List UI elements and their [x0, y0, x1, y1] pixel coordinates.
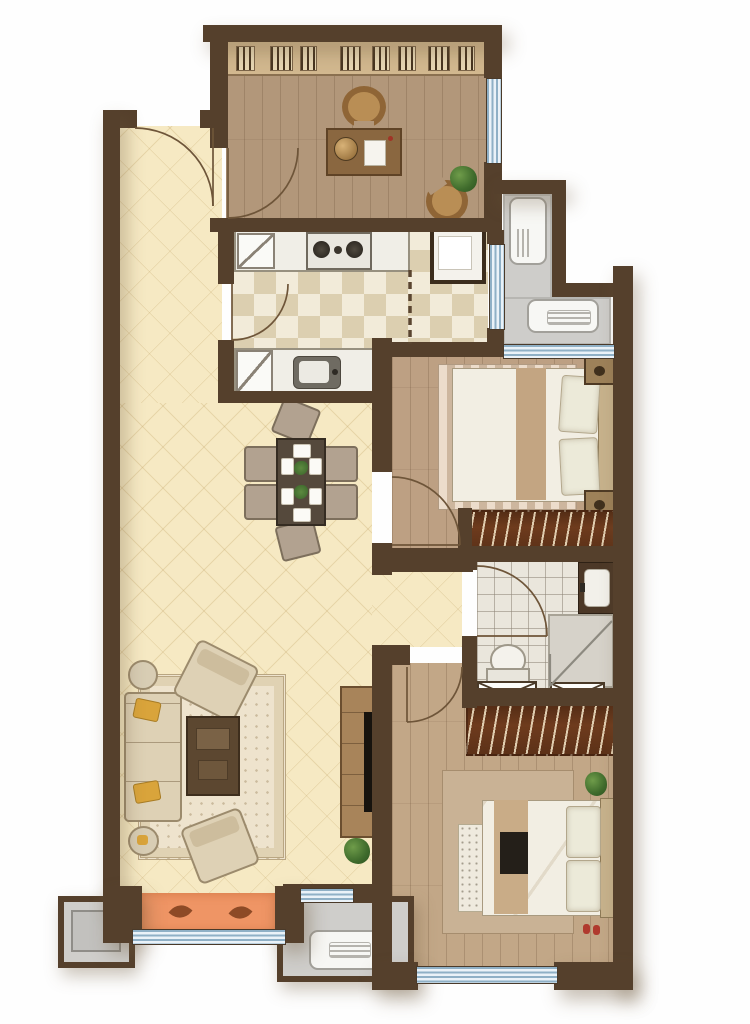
- table-item: [137, 835, 148, 845]
- side-table: [128, 826, 159, 856]
- wall-study-right-lower: [484, 162, 502, 230]
- books: [236, 46, 255, 71]
- wall-kitchen-left-lower: [218, 340, 234, 395]
- wall-study-kitchen: [210, 218, 502, 232]
- bedroom1-headboard: [598, 366, 614, 504]
- wall-balcony-right: [552, 180, 566, 297]
- books: [428, 46, 450, 71]
- nightstand: [584, 356, 615, 385]
- books: [340, 46, 361, 71]
- tray: [196, 728, 230, 750]
- wall-kitchen-right-upper: [487, 230, 504, 244]
- corridor-floor: [372, 571, 462, 647]
- study-plant: [450, 166, 477, 192]
- cooktop: [306, 232, 372, 270]
- bed-tray-dark: [500, 832, 528, 874]
- wall-bedroom1-top: [386, 342, 503, 357]
- placemat: [281, 488, 294, 505]
- wall-kitchen-bottom: [218, 391, 386, 403]
- fridge-inner: [438, 236, 472, 270]
- shower-area: [548, 614, 614, 688]
- sink-faucet: [332, 369, 338, 375]
- window-living-small: [300, 888, 354, 903]
- slipper: [593, 925, 600, 935]
- sofa: [124, 692, 182, 822]
- desk-chair: [342, 86, 386, 128]
- vanity-faucet: [580, 583, 585, 592]
- study-desk: [326, 128, 402, 176]
- wall-bathroom-left-stub: [462, 560, 477, 570]
- wall-bedroom1-bottom: [372, 548, 473, 572]
- burner-knob: [334, 246, 342, 254]
- dining-chair: [322, 484, 358, 520]
- burner: [346, 241, 363, 258]
- foot-bench: [458, 824, 485, 912]
- wall-kitchen-left-upper: [218, 232, 234, 284]
- window-living-bay: [132, 929, 286, 945]
- sofa-pillow: [132, 780, 161, 804]
- coffee-table: [186, 716, 240, 796]
- wall-entry-corner: [200, 110, 217, 128]
- unit-lines: [547, 310, 591, 325]
- wall-bathroom-top: [462, 546, 615, 562]
- kitchen-sink: [293, 356, 341, 389]
- floor-plan-canvas: [0, 0, 750, 1024]
- window-master-bottom: [416, 966, 558, 984]
- balcony-storage-unit: [527, 299, 599, 333]
- kitchen-lower-box: [236, 350, 273, 393]
- dining-chair: [244, 484, 280, 520]
- placemat: [281, 458, 294, 475]
- pillow: [566, 860, 601, 912]
- bay-window-mat: [140, 893, 277, 932]
- wall-master-bottom-right: [554, 962, 633, 990]
- books: [398, 46, 416, 71]
- table-centerpiece: [294, 485, 308, 499]
- washer-lines: [517, 229, 530, 257]
- window-bedroom1-balcony: [503, 344, 615, 359]
- wall-study-right-upper: [484, 40, 502, 78]
- books: [300, 46, 317, 71]
- kitchen-prep-box: [237, 233, 275, 269]
- books: [372, 46, 390, 71]
- books: [458, 46, 475, 71]
- wall-bedroom1-left-upper: [372, 338, 392, 472]
- desk-red-dot: [388, 136, 393, 141]
- bedroom1-bed-runner: [516, 368, 546, 500]
- vanity-basin: [584, 569, 610, 607]
- leaf-print: [229, 901, 253, 925]
- wall-balcony-step: [566, 283, 614, 297]
- placemat: [309, 488, 322, 505]
- side-table: [128, 660, 158, 690]
- leaf-print: [169, 900, 193, 924]
- refrigerator: [430, 228, 486, 284]
- master-wardrobe: [466, 704, 616, 756]
- window-study-right: [486, 78, 502, 164]
- placemat: [293, 444, 311, 458]
- wall-study-top: [203, 25, 502, 42]
- living-plant: [344, 838, 370, 864]
- table-centerpiece: [294, 461, 308, 475]
- vanity-counter: [578, 562, 616, 614]
- wall-bathroom-bottom: [462, 688, 615, 706]
- books: [270, 46, 293, 71]
- pillow: [566, 806, 601, 858]
- master-headboard: [600, 798, 614, 918]
- wall-left-main: [103, 110, 120, 905]
- wall-master-bottom-left: [372, 962, 418, 990]
- sofa-pillow: [132, 698, 162, 723]
- wall-closet-stub: [458, 508, 472, 550]
- washing-machine: [509, 197, 547, 265]
- window-kitchen-balcony: [489, 244, 505, 330]
- dining-chair: [244, 446, 280, 482]
- placemat: [293, 508, 311, 522]
- hallway-floor-upper: [118, 126, 222, 405]
- wall-study-left: [210, 25, 228, 148]
- desk-globe: [334, 137, 358, 161]
- dining-table: [276, 438, 326, 526]
- master-plant: [585, 772, 607, 796]
- slipper: [583, 924, 590, 934]
- pillow: [559, 437, 601, 496]
- desk-paper: [364, 140, 386, 166]
- sink-basin: [299, 361, 329, 383]
- placemat: [309, 458, 322, 475]
- tray: [198, 760, 228, 780]
- burner: [313, 241, 330, 258]
- dining-chair: [322, 446, 358, 482]
- ac-vent-lines: [329, 942, 371, 958]
- wall-right-main: [613, 266, 633, 990]
- wall-master-left: [372, 645, 392, 985]
